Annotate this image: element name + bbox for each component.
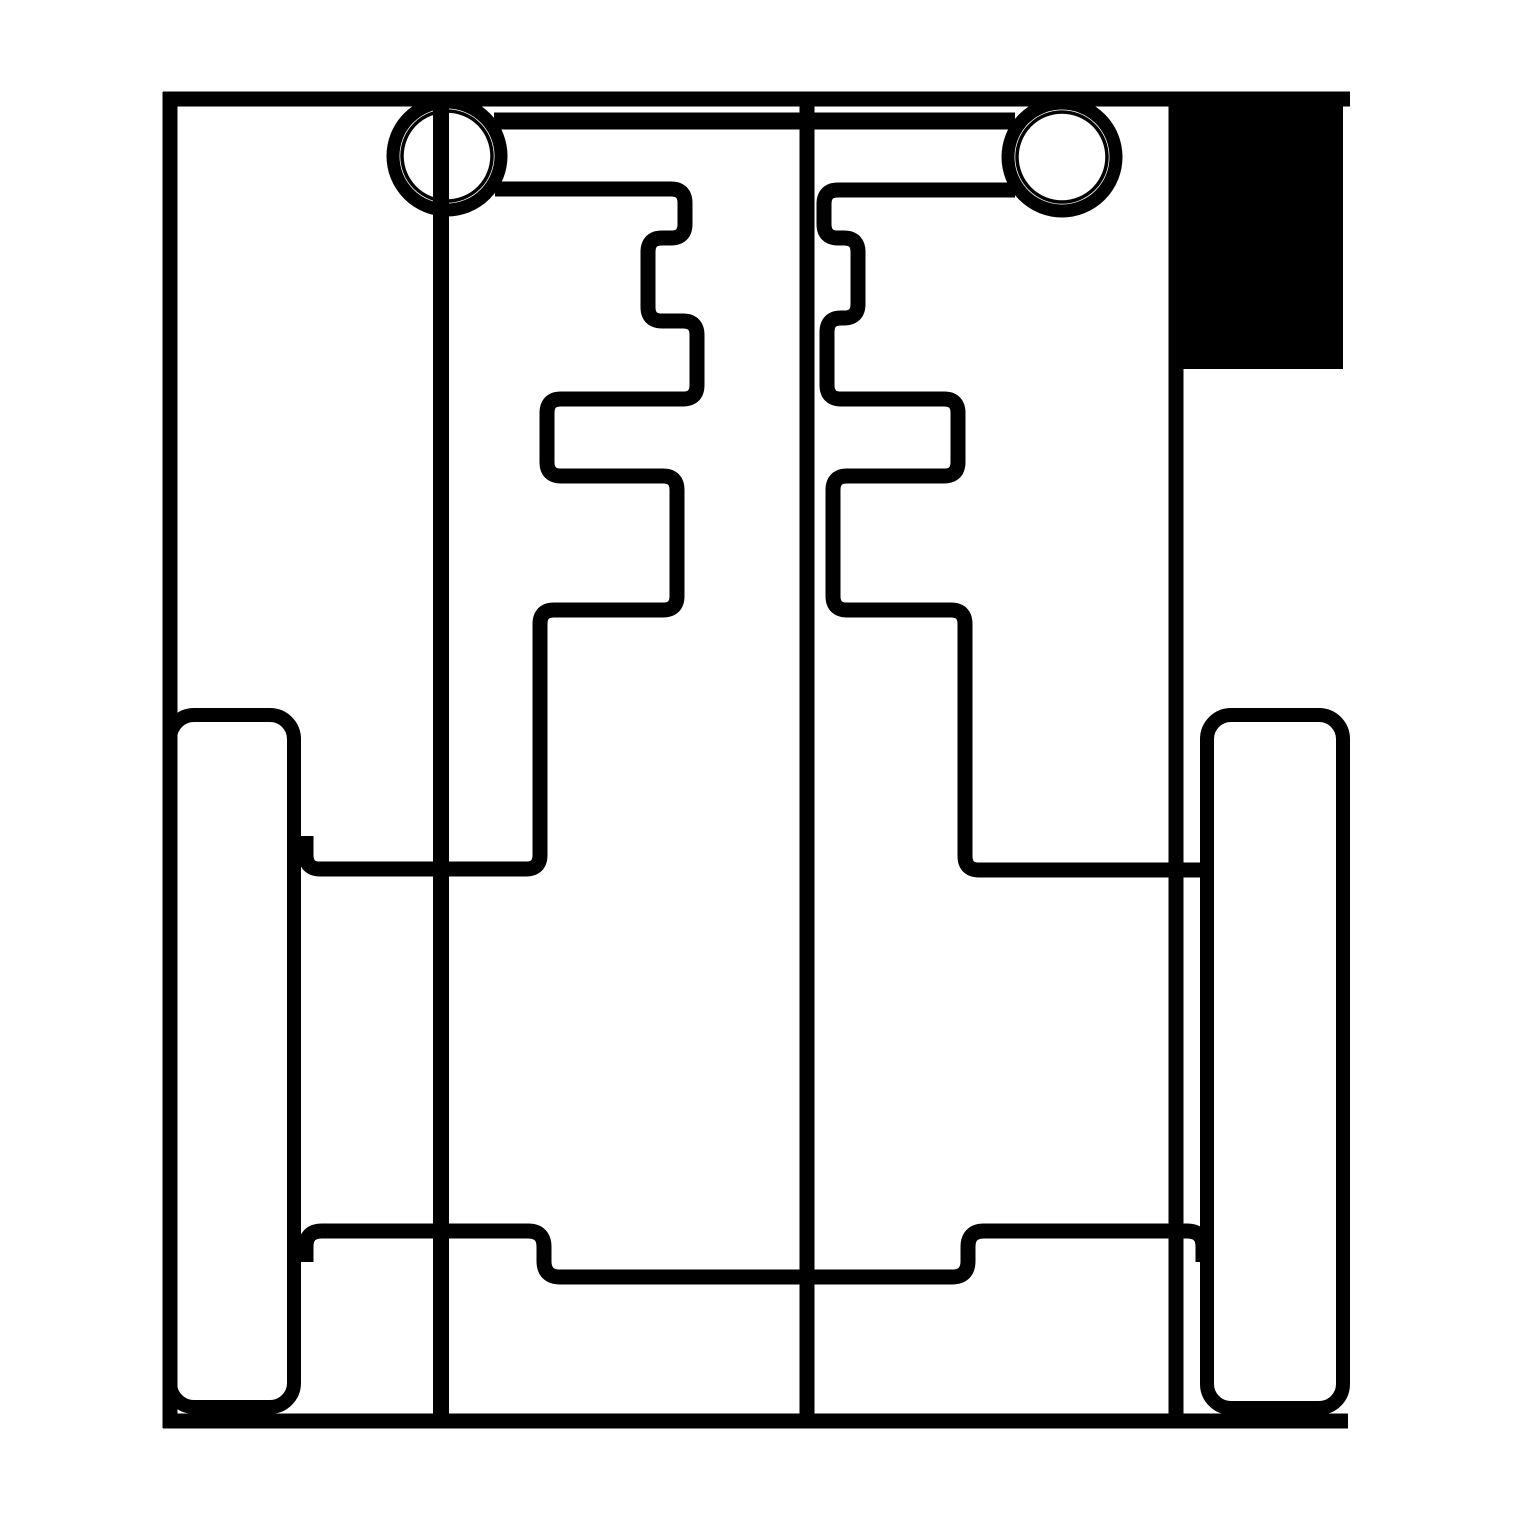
left-comb-profile (306, 189, 697, 869)
left-runner-outline (170, 715, 294, 1407)
right-comb-profile (824, 190, 1213, 870)
right-runner-outline (1207, 715, 1343, 1408)
drawing-page (0, 0, 1519, 1519)
right-pivot-ring-inner (1017, 112, 1107, 202)
technical-drawing (0, 0, 1519, 1519)
right-pivot-ring-outer (1008, 103, 1116, 211)
filled-corner-block (1169, 92, 1343, 369)
